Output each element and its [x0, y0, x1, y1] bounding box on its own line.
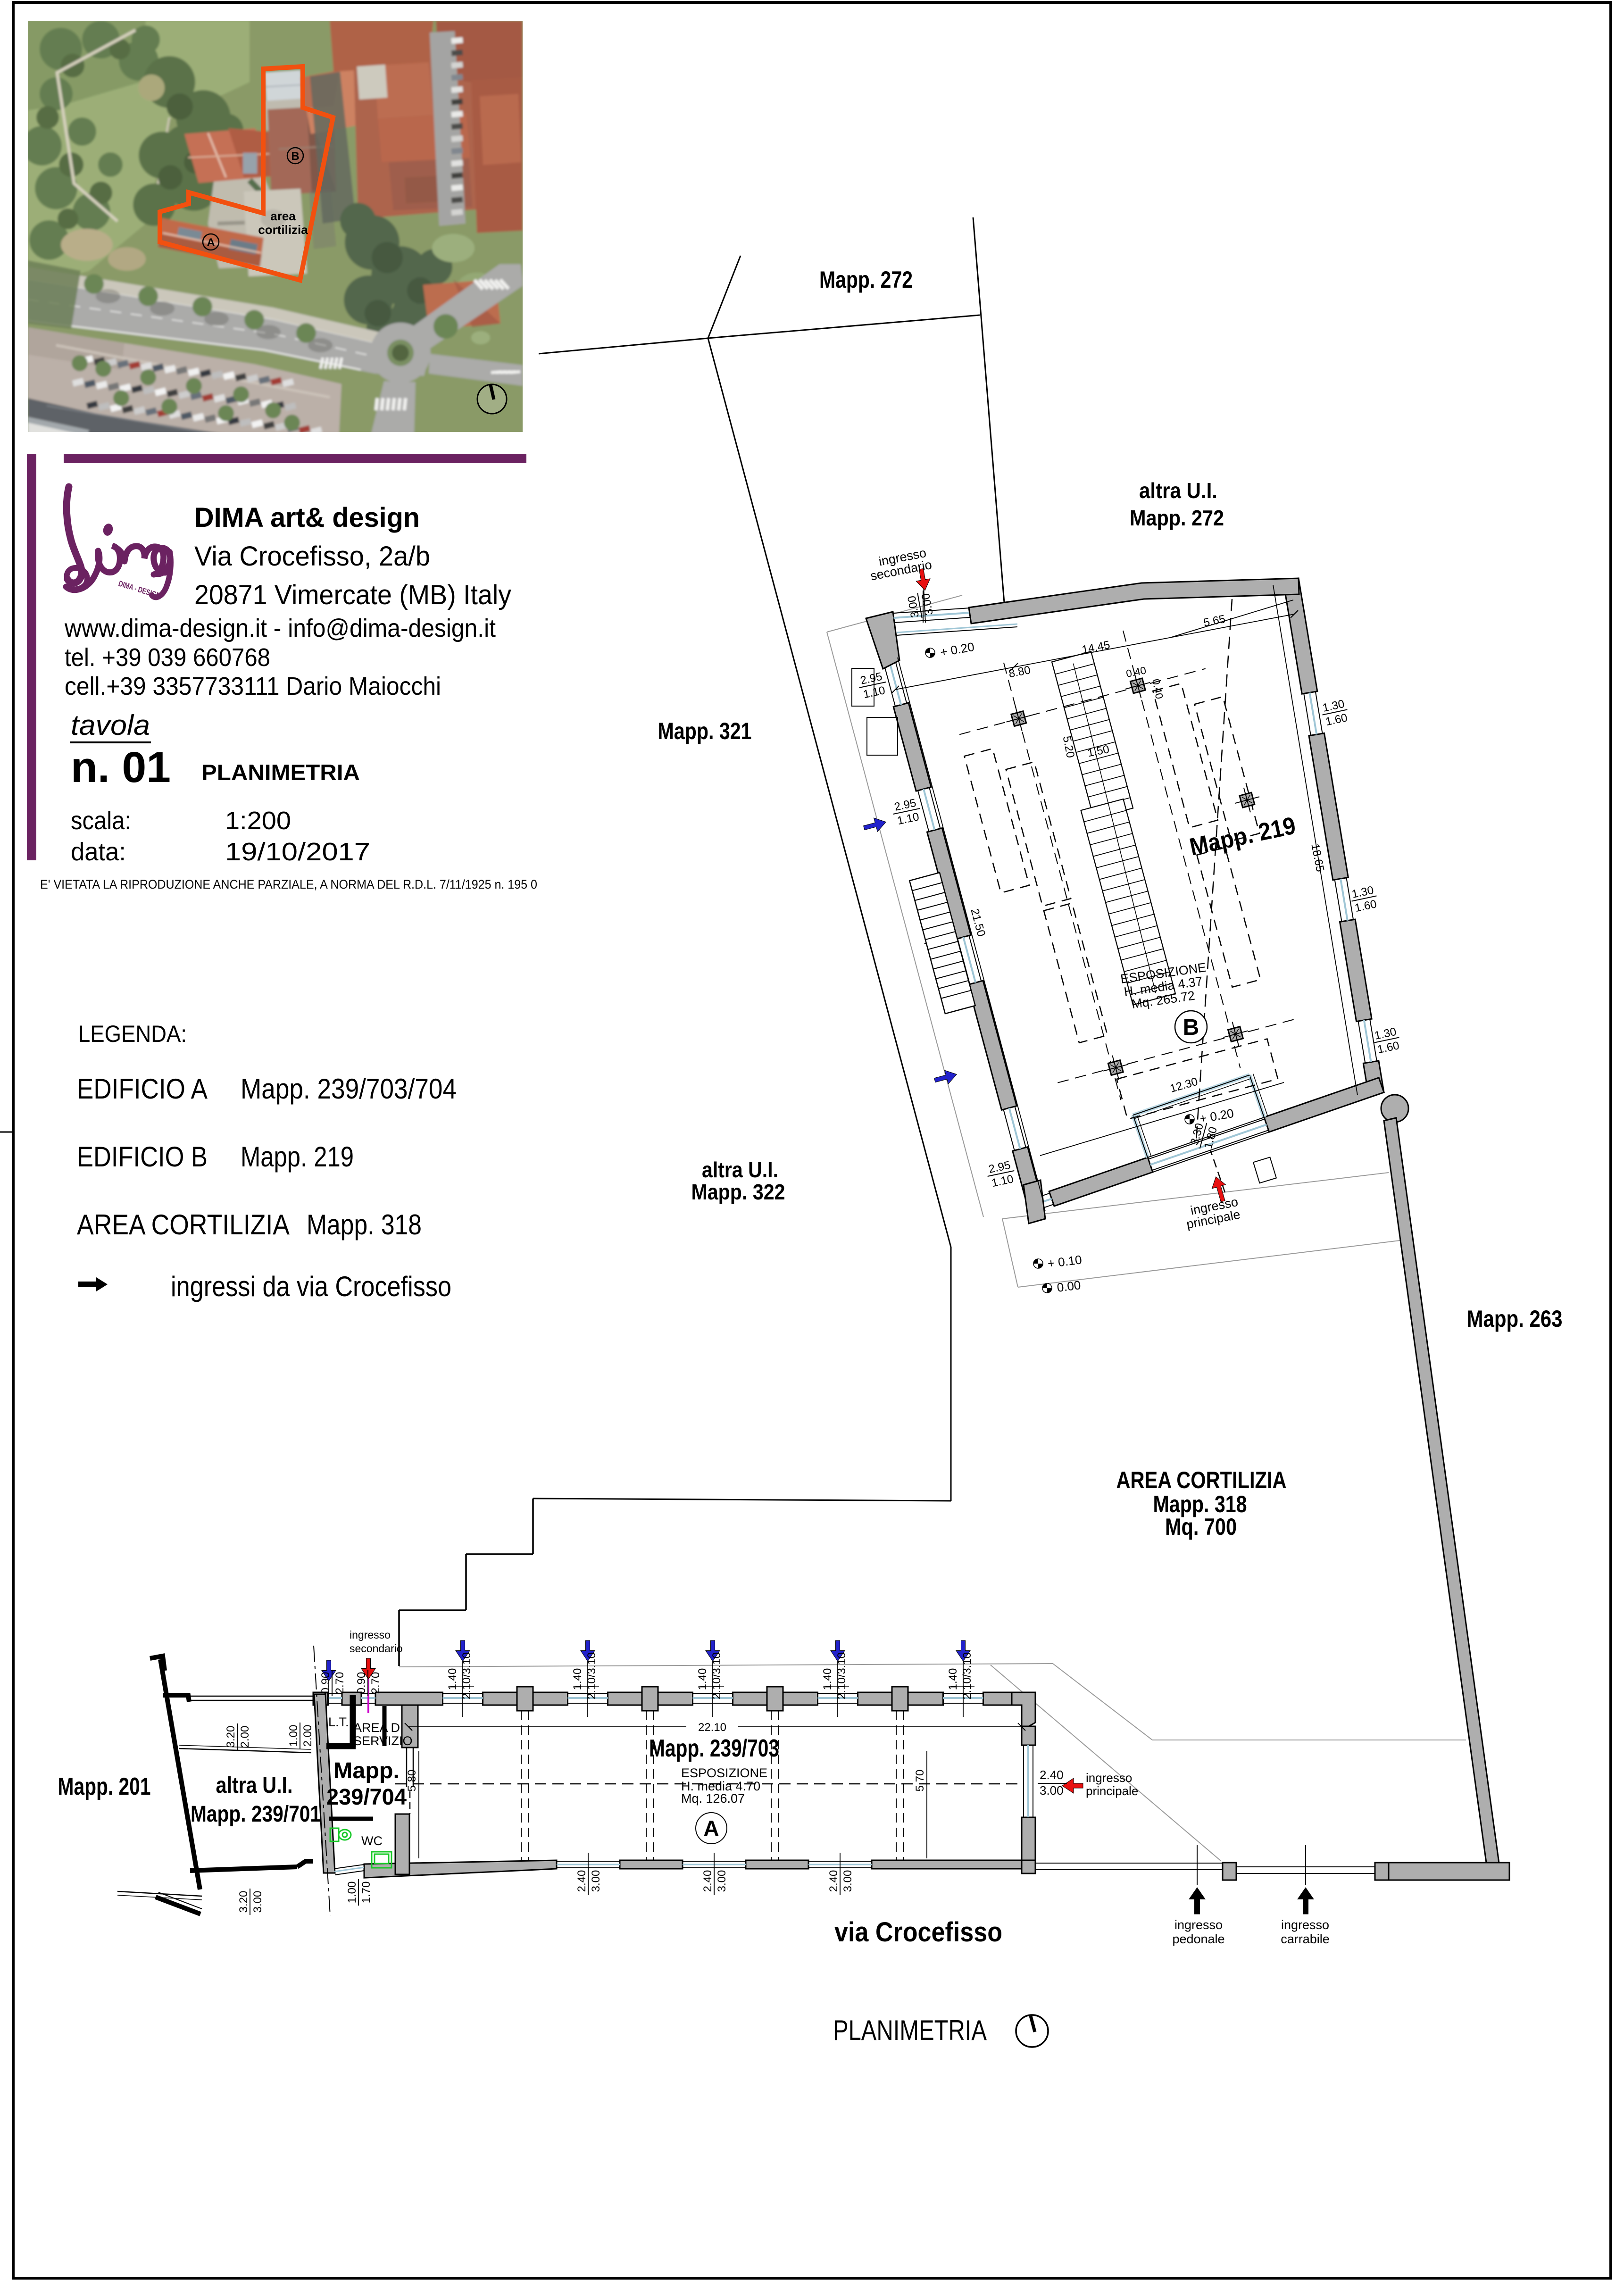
svg-text:WC: WC	[361, 1834, 383, 1848]
svg-text:3.00: 3.00	[841, 1870, 854, 1892]
svg-text:2.40: 2.40	[1040, 1768, 1064, 1782]
svg-text:Mapp. 321: Mapp. 321	[658, 718, 752, 744]
svg-text:1.70: 1.70	[360, 1881, 373, 1904]
svg-text:A: A	[703, 1816, 719, 1840]
svg-text:A: A	[207, 236, 215, 249]
svg-text:5.70: 5.70	[914, 1770, 926, 1792]
svg-text:Mapp. 239/703: Mapp. 239/703	[649, 1735, 779, 1762]
svg-text:Mapp. 263: Mapp. 263	[1467, 1306, 1563, 1332]
svg-text:LEGENDA:: LEGENDA:	[78, 1021, 187, 1047]
svg-text:1.40: 1.40	[571, 1668, 584, 1690]
svg-text:1.40: 1.40	[696, 1668, 709, 1690]
svg-text:ingresso: ingresso	[350, 1629, 391, 1641]
svg-text:altra U.I.: altra U.I.	[216, 1773, 293, 1798]
svg-text:AREA CORTILIZIA: AREA CORTILIZIA	[77, 1209, 290, 1240]
svg-text:area: area	[270, 209, 296, 223]
svg-text:239/704: 239/704	[326, 1785, 407, 1810]
svg-text:2.10/3.10: 2.10/3.10	[835, 1652, 848, 1699]
svg-text:B: B	[1183, 1015, 1199, 1040]
svg-text:carrabile: carrabile	[1281, 1932, 1330, 1946]
svg-text:tavola: tavola	[71, 709, 150, 741]
svg-text:Mapp. 219: Mapp. 219	[241, 1141, 354, 1173]
svg-text:Mapp.: Mapp.	[333, 1758, 400, 1783]
svg-text:PLANIMETRIA: PLANIMETRIA	[833, 2014, 987, 2046]
svg-text:3.20: 3.20	[237, 1891, 250, 1913]
svg-text:2.40: 2.40	[575, 1870, 588, 1892]
svg-text:ESPOSIZIONE: ESPOSIZIONE	[681, 1766, 767, 1780]
svg-text:n. 01: n. 01	[71, 743, 171, 791]
svg-text:AREA DI: AREA DI	[353, 1721, 404, 1735]
svg-text:1.40: 1.40	[947, 1668, 959, 1690]
svg-text:PLANIMETRIA: PLANIMETRIA	[201, 760, 360, 785]
svg-text:EDIFICIO A: EDIFICIO A	[77, 1073, 208, 1105]
svg-text:DIMA art& design: DIMA art& design	[194, 502, 420, 533]
svg-text:AREA CORTILIZIA: AREA CORTILIZIA	[1116, 1467, 1287, 1493]
svg-text:scala:: scala:	[71, 807, 131, 835]
svg-text:1.00: 1.00	[287, 1725, 300, 1747]
svg-text:Mapp. 272: Mapp. 272	[1130, 506, 1224, 530]
svg-text:B: B	[291, 150, 299, 163]
svg-text:via Crocefisso: via Crocefisso	[834, 1917, 1002, 1948]
svg-text:19/10/2017: 19/10/2017	[225, 838, 370, 866]
svg-text:ingresso: ingresso	[1086, 1771, 1132, 1785]
svg-text:2.10/3.10: 2.10/3.10	[460, 1652, 473, 1699]
svg-text:Mapp. 318: Mapp. 318	[307, 1209, 422, 1240]
svg-text:tel. +39 039 660768: tel. +39 039 660768	[65, 643, 270, 672]
svg-text:principale: principale	[1086, 1784, 1138, 1798]
svg-text:secondario: secondario	[350, 1642, 403, 1655]
svg-text:5.80: 5.80	[406, 1770, 418, 1792]
svg-text:Mapp. 239/701: Mapp. 239/701	[191, 1802, 321, 1827]
svg-text:2.40: 2.40	[701, 1870, 714, 1892]
svg-text:Via Crocefisso, 2a/b: Via Crocefisso, 2a/b	[194, 541, 430, 572]
svg-text:ingresso: ingresso	[1174, 1918, 1223, 1932]
svg-text:2.10/3.10: 2.10/3.10	[961, 1652, 974, 1699]
svg-text:cortilizia: cortilizia	[258, 223, 308, 237]
svg-text:0.90: 0.90	[355, 1672, 368, 1694]
svg-text:Mq. 700: Mq. 700	[1165, 1514, 1237, 1540]
svg-text:1.40: 1.40	[821, 1668, 834, 1690]
svg-text:2.00: 2.00	[239, 1726, 251, 1748]
svg-text:E' VIETATA LA RIPRODUZIONE ANC: E' VIETATA LA RIPRODUZIONE ANCHE PARZIAL…	[40, 877, 537, 891]
svg-text:Mapp. 239/703/704: Mapp. 239/703/704	[241, 1073, 457, 1105]
svg-text:1.40: 1.40	[446, 1668, 459, 1690]
svg-text:Mapp. 201: Mapp. 201	[58, 1773, 151, 1800]
svg-text:cell.+39 3357733111 Dario Maio: cell.+39 3357733111 Dario Maiocchi	[65, 672, 441, 700]
svg-text:3.00: 3.00	[251, 1891, 264, 1913]
svg-text:0.00: 0.00	[1056, 1278, 1082, 1295]
svg-text:pedonale: pedonale	[1172, 1932, 1224, 1946]
svg-text:altra U.I.: altra U.I.	[1139, 478, 1217, 503]
svg-text:L.T.: L.T.	[328, 1715, 349, 1729]
svg-text:data:: data:	[71, 838, 126, 866]
svg-text:altra U.I.: altra U.I.	[702, 1157, 778, 1182]
svg-text:22.10: 22.10	[698, 1721, 726, 1734]
svg-text:www.dima-design.it - info@dima: www.dima-design.it - info@dima-design.it	[64, 614, 496, 642]
svg-text:Mapp. 272: Mapp. 272	[819, 266, 913, 293]
svg-text:2.00: 2.00	[301, 1725, 314, 1747]
svg-text:1:200: 1:200	[225, 807, 291, 835]
svg-text:2.10/3.10: 2.10/3.10	[710, 1652, 723, 1699]
svg-text:2.70: 2.70	[333, 1672, 346, 1694]
svg-text:2.10/3.10: 2.10/3.10	[585, 1652, 598, 1699]
svg-text:EDIFICIO B: EDIFICIO B	[77, 1141, 208, 1173]
svg-text:SERVIZIO: SERVIZIO	[353, 1734, 413, 1748]
svg-text:ingressi da via Crocefisso: ingressi da via Crocefisso	[171, 1271, 451, 1302]
svg-text:Mapp. 322: Mapp. 322	[691, 1180, 785, 1204]
svg-text:3.00: 3.00	[590, 1870, 602, 1892]
svg-text:2.40: 2.40	[827, 1870, 840, 1892]
svg-text:Mq. 126.07: Mq. 126.07	[681, 1791, 745, 1806]
svg-text:0.90: 0.90	[319, 1672, 332, 1694]
svg-text:1.00: 1.00	[346, 1881, 358, 1904]
svg-text:3.00: 3.00	[716, 1870, 728, 1892]
svg-text:3.00: 3.00	[1040, 1783, 1064, 1798]
svg-text:2.70: 2.70	[369, 1672, 382, 1694]
svg-text:20871 Vimercate (MB) Italy: 20871 Vimercate (MB) Italy	[194, 580, 511, 610]
svg-text:ingresso: ingresso	[1281, 1918, 1329, 1932]
svg-text:3.20: 3.20	[225, 1726, 237, 1748]
